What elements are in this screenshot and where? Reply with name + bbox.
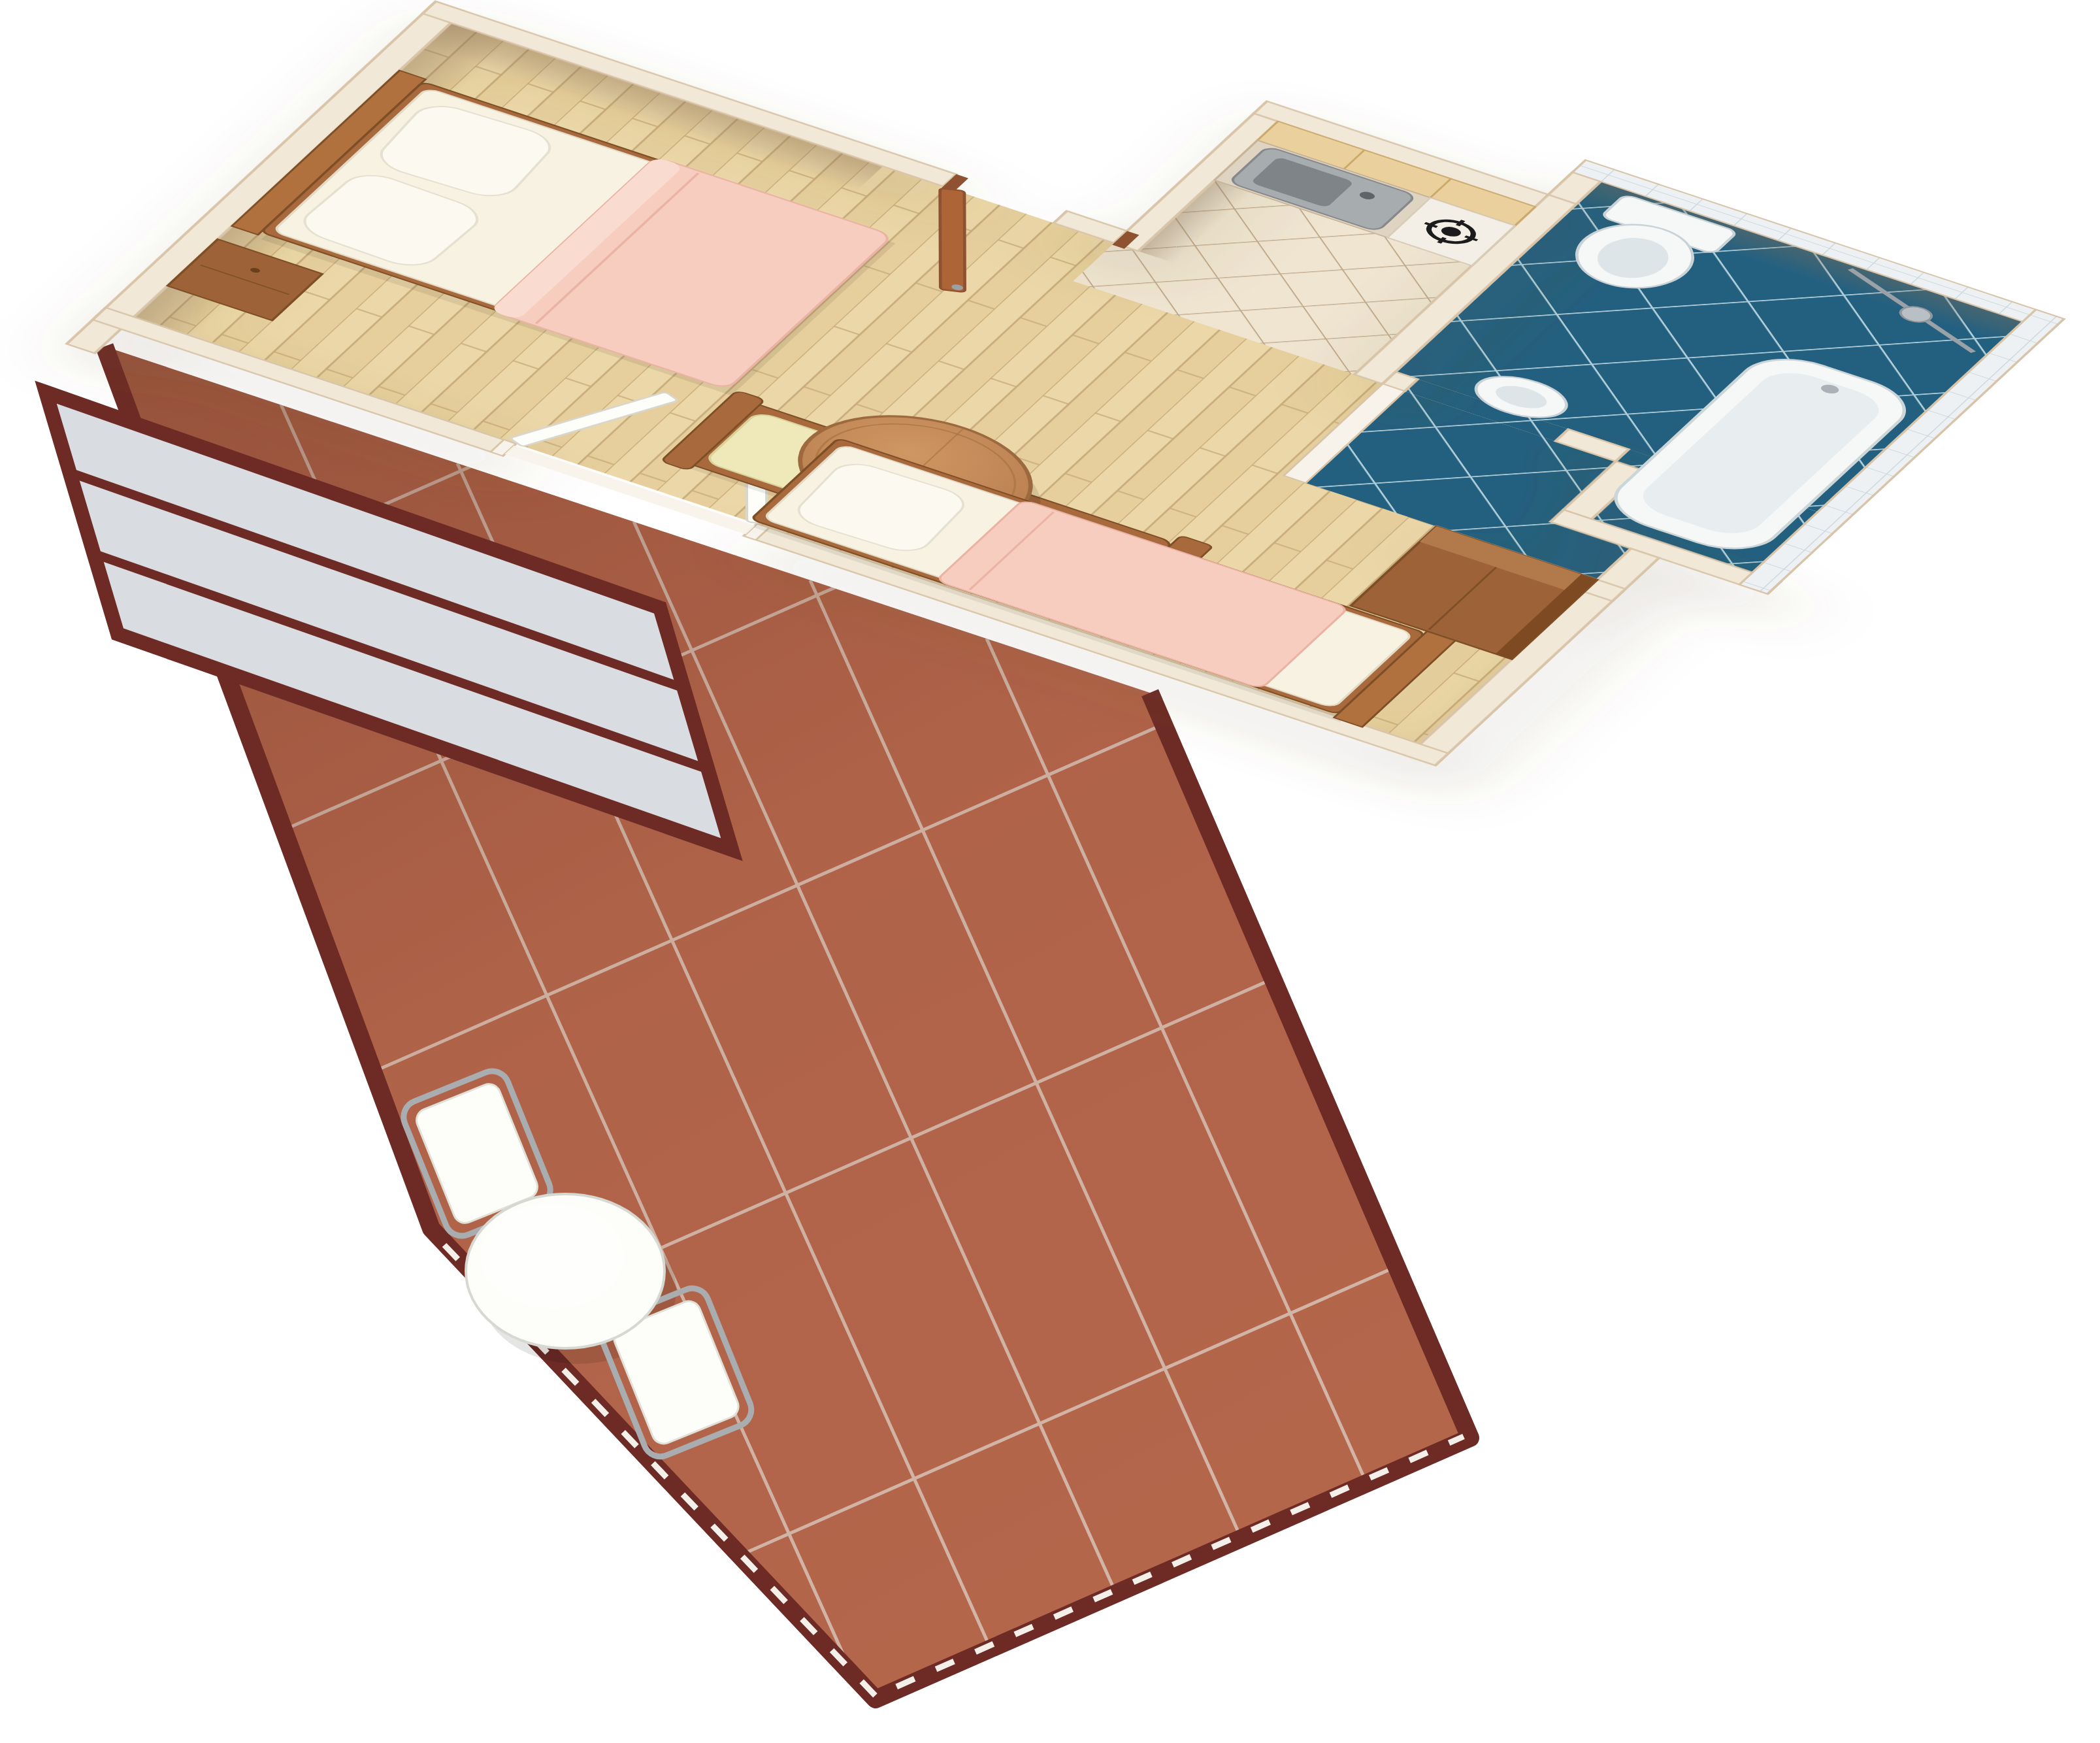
floor-plan-canvas [0,0,2100,1743]
floor-plan-svg [0,0,2100,1743]
entrance-door-leaf [940,188,965,292]
terrace-table-top-highlight [480,1204,624,1308]
